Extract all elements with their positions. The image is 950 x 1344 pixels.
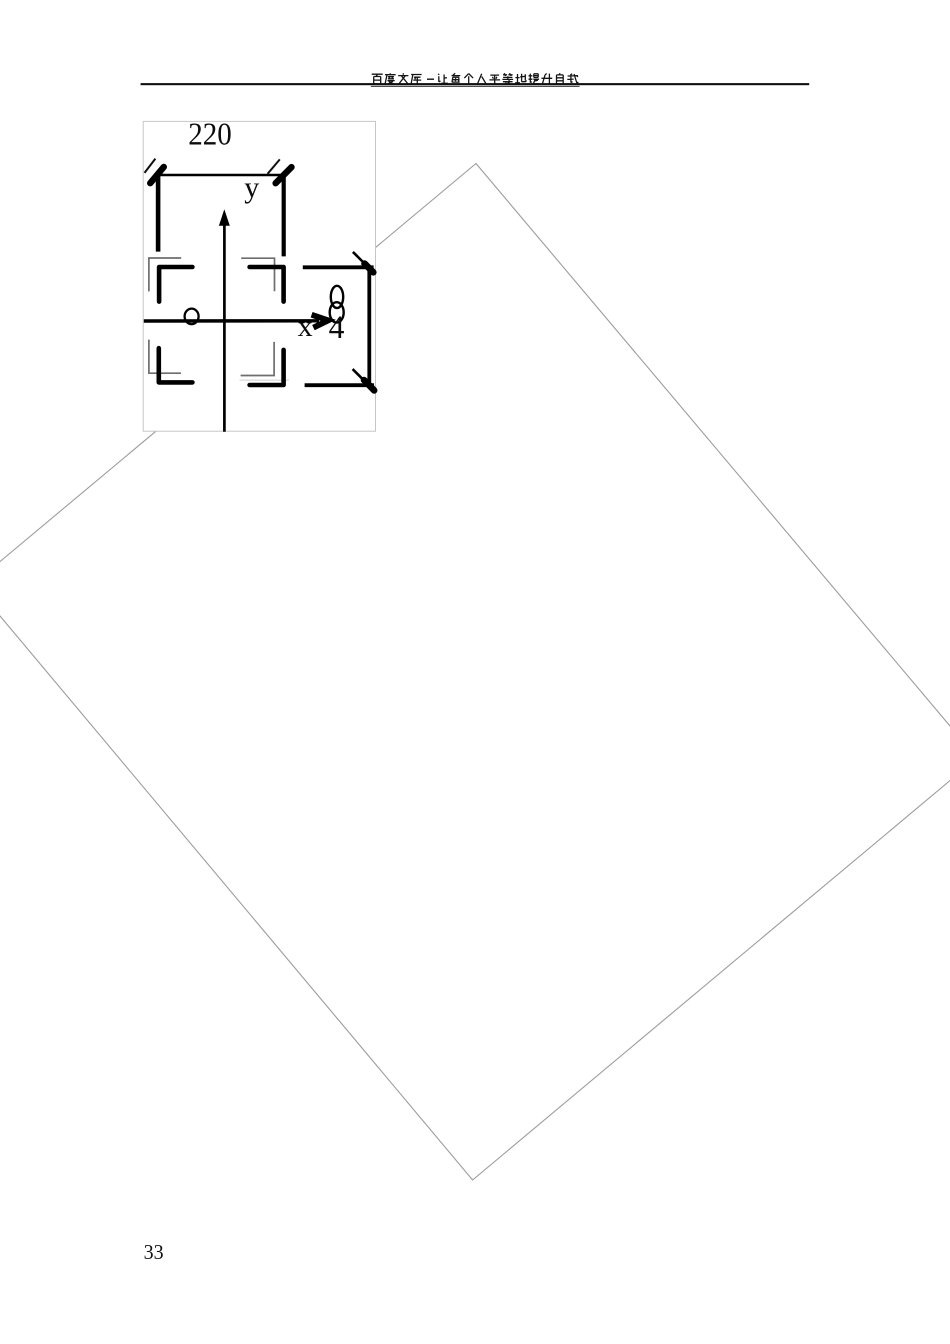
- svg-text:y: y: [244, 171, 259, 204]
- svg-text:33: 33: [144, 1240, 164, 1264]
- svg-text:x: x: [298, 310, 313, 343]
- svg-text:220: 220: [188, 116, 232, 152]
- svg-text:4: 4: [329, 310, 345, 346]
